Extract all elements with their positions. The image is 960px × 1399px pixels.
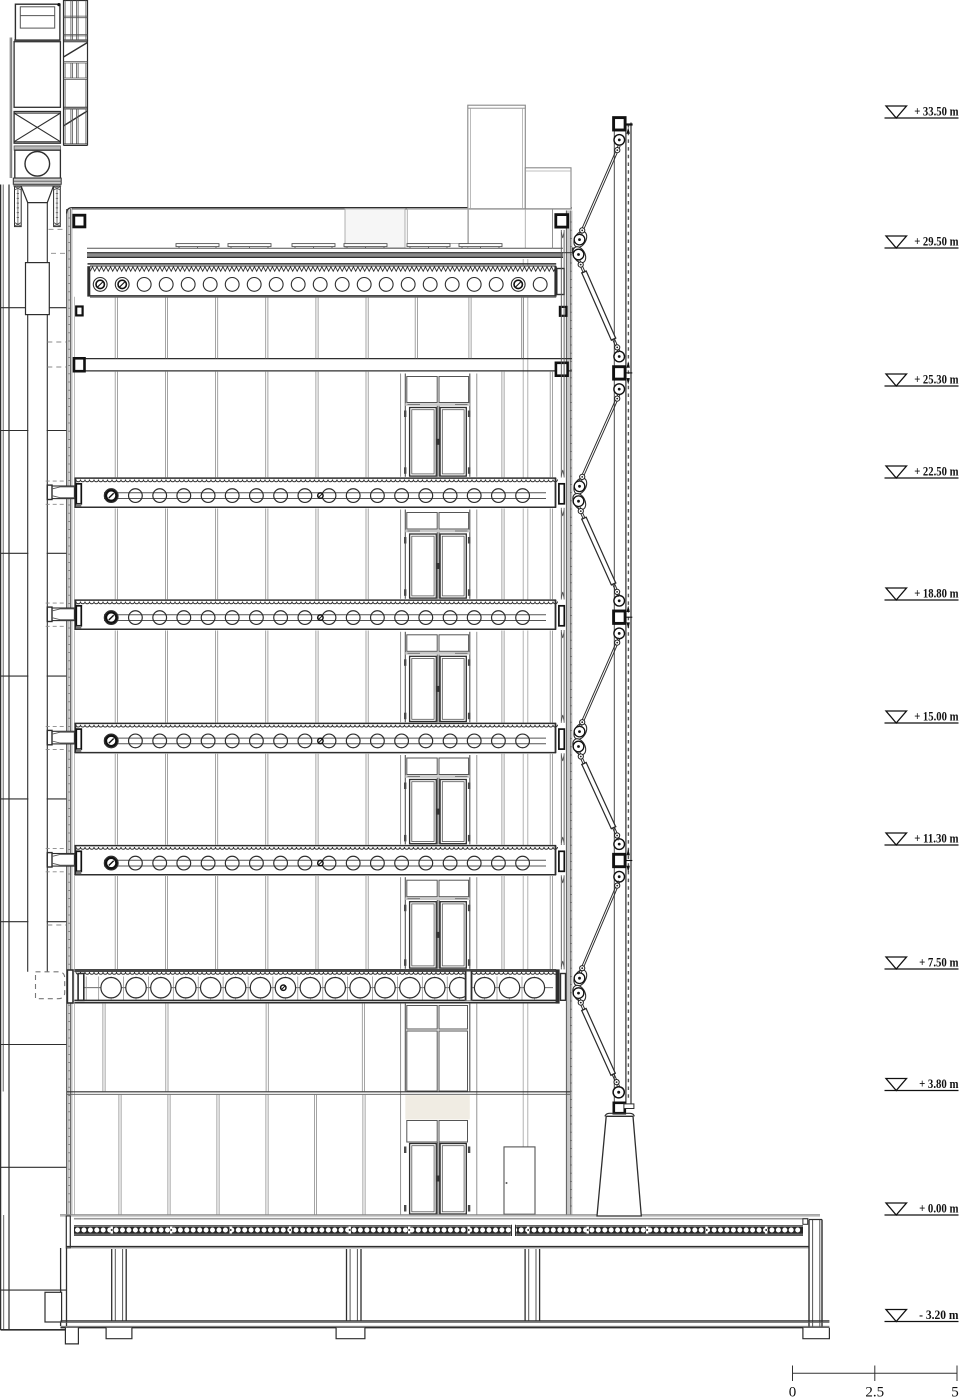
svg-text:+ 15.00 m: + 15.00 m — [914, 710, 958, 724]
svg-text:+ 0.00 m: + 0.00 m — [919, 1202, 958, 1216]
svg-text:+ 29.50 m: + 29.50 m — [914, 235, 958, 249]
svg-text:+ 33.50 m: + 33.50 m — [914, 105, 958, 119]
svg-text:+ 7.50 m: + 7.50 m — [919, 956, 958, 970]
svg-text:0: 0 — [789, 1385, 797, 1399]
svg-text:+ 25.30 m: + 25.30 m — [914, 373, 958, 387]
svg-text:+ 22.50 m: + 22.50 m — [914, 465, 958, 479]
svg-text:+ 18.80 m: + 18.80 m — [914, 587, 958, 601]
svg-text:- 3.20 m: - 3.20 m — [919, 1308, 958, 1322]
svg-text:2.5: 2.5 — [865, 1385, 884, 1399]
svg-text:5: 5 — [951, 1385, 959, 1399]
svg-text:+ 11.30 m: + 11.30 m — [914, 832, 958, 846]
svg-text:+ 3.80 m: + 3.80 m — [919, 1077, 958, 1091]
